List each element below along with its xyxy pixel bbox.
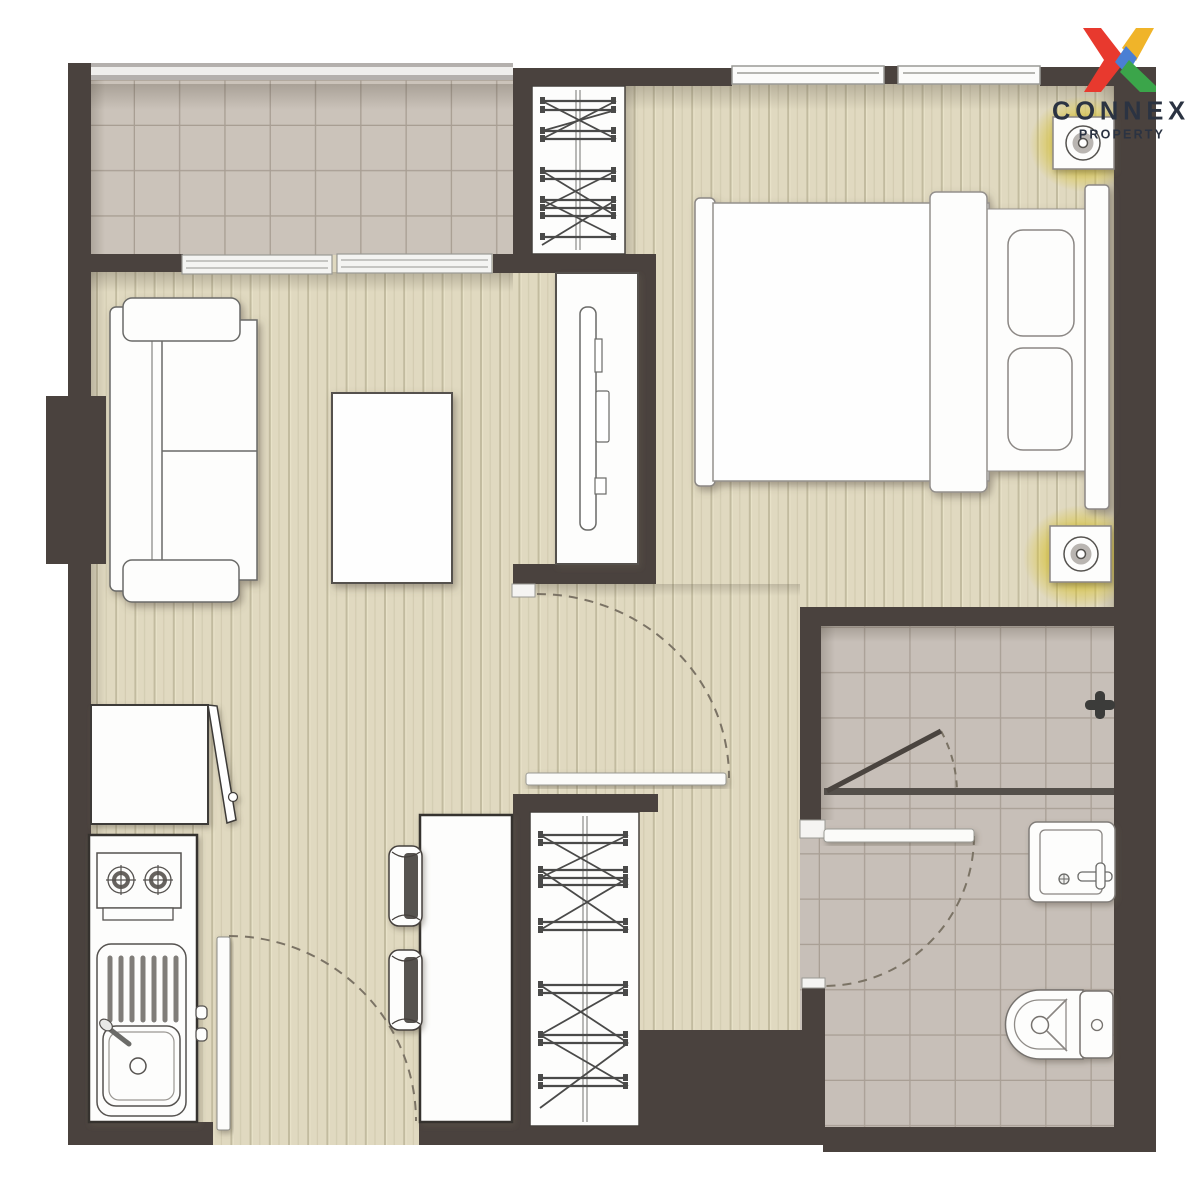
svg-text:PROPERTY: PROPERTY [1079, 128, 1165, 142]
svg-text:CONNEX: CONNEX [1052, 98, 1190, 126]
